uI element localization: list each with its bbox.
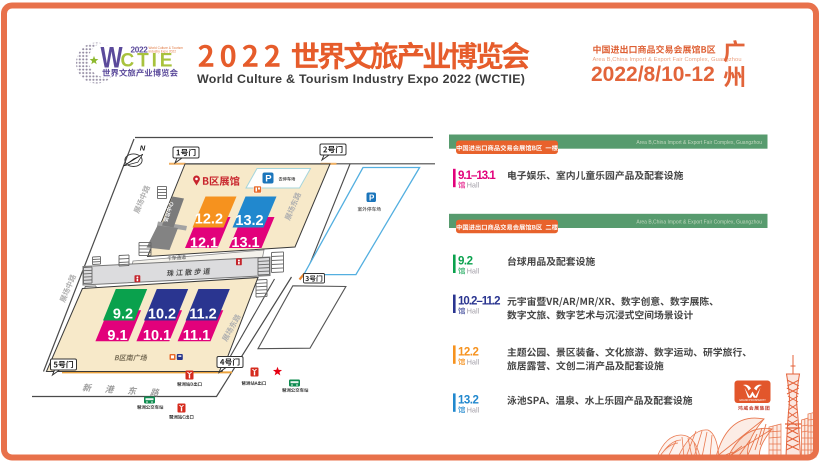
svg-text:Area B,China Import & Export F: Area B,China Import & Export Fair Comple… bbox=[636, 140, 762, 146]
svg-text:Hall: Hall bbox=[467, 181, 480, 190]
svg-text:13.1: 13.1 bbox=[231, 235, 259, 251]
svg-text:CTIE: CTIE bbox=[121, 51, 176, 72]
svg-text:12.1: 12.1 bbox=[190, 235, 218, 251]
svg-text:13.2: 13.2 bbox=[235, 213, 263, 229]
svg-text:Hall: Hall bbox=[467, 357, 480, 366]
svg-text:P: P bbox=[369, 194, 375, 203]
svg-text:Area B,China Import & Export F: Area B,China Import & Export Fair Comple… bbox=[636, 219, 762, 225]
svg-text:2022: 2022 bbox=[131, 46, 149, 55]
svg-text:Industry Expo 2022: Industry Expo 2022 bbox=[149, 49, 177, 53]
svg-text:2022/8/10-12: 2022/8/10-12 bbox=[591, 63, 715, 86]
svg-text:Hall: Hall bbox=[467, 307, 480, 316]
svg-text:Area B,China Import & Export F: Area B,China Import & Export Fair Comple… bbox=[593, 57, 742, 63]
svg-text:9.1: 9.1 bbox=[107, 328, 127, 344]
svg-text:9.2: 9.2 bbox=[113, 307, 133, 323]
svg-text:11.2: 11.2 bbox=[189, 307, 216, 323]
svg-text:N: N bbox=[140, 144, 146, 153]
svg-text:10.2: 10.2 bbox=[148, 307, 176, 323]
svg-text:P: P bbox=[265, 174, 272, 185]
svg-text:11.1: 11.1 bbox=[183, 328, 210, 344]
svg-text:Hall: Hall bbox=[467, 267, 480, 276]
svg-text:World Culture & Tourism Indust: World Culture & Tourism Industry Expo 20… bbox=[197, 72, 525, 86]
svg-text:12.2: 12.2 bbox=[195, 212, 223, 228]
svg-text:Hall: Hall bbox=[467, 405, 480, 414]
svg-text:10.1: 10.1 bbox=[143, 328, 171, 344]
svg-text:GRAND PROSPERITY: GRAND PROSPERITY bbox=[739, 398, 766, 402]
